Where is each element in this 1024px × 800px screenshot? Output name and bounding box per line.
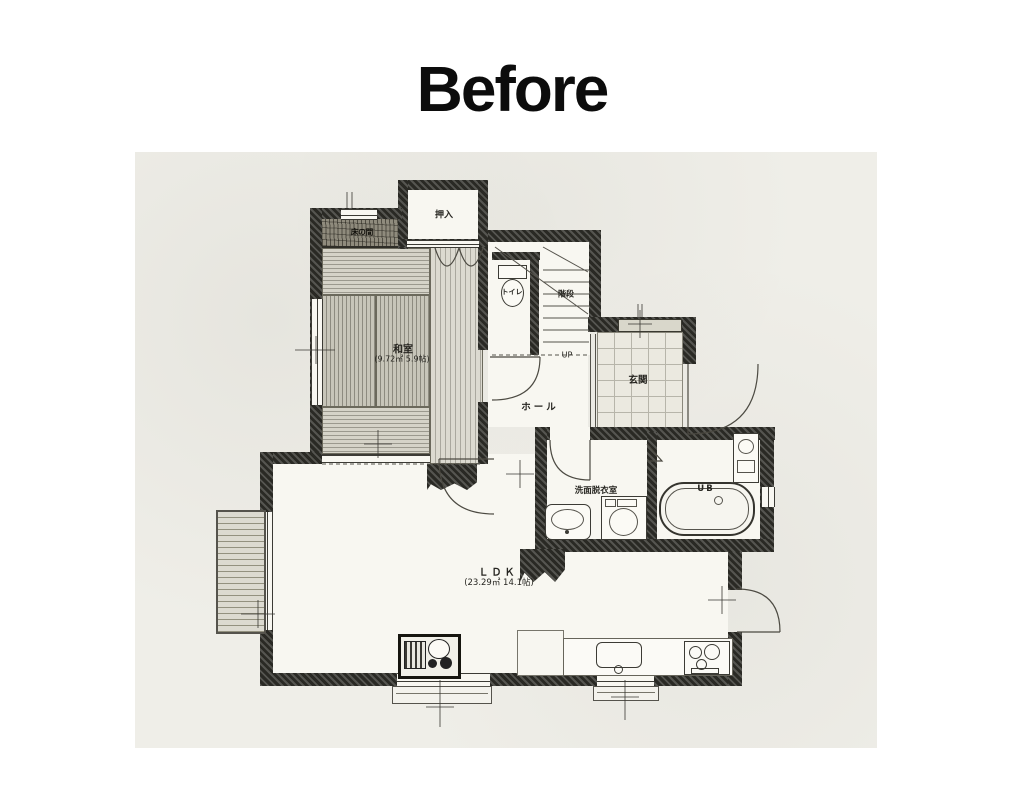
floor-plan: 押入 床の間 和室 (9.72㎡ 5.9帖) トイレ 階段 UP 玄関 ホール …	[135, 152, 877, 748]
room-label-toilet: トイレ	[502, 287, 523, 297]
room-area-ldk: (23.29㎡ 14.1帖)	[464, 576, 534, 588]
room-label-hall: ホール	[521, 399, 559, 413]
screenshot-root: { "page": { "title": "Before" }, "colors…	[0, 0, 1024, 800]
laundry-door-swing	[550, 440, 590, 480]
room-label-stairs: 階段	[558, 289, 574, 300]
door-swing-and-linework-layer	[135, 152, 877, 748]
toilet-door-swing	[490, 357, 540, 400]
room-label-oshiire: 押入	[435, 208, 453, 221]
bath-folding-door	[647, 444, 662, 461]
page-title: Before	[0, 52, 1024, 126]
room-label-laundry: 洗面脱衣室	[575, 484, 618, 496]
hall-ldk-door-swing	[439, 459, 494, 514]
room-label-genkan: 玄関	[628, 372, 647, 386]
ldk-back-door-swing	[737, 589, 780, 632]
stairs-up-label: UP	[562, 351, 573, 360]
fusuma-swing-marks	[435, 248, 483, 266]
room-area-washitsu: (9.72㎡ 5.9帖)	[374, 354, 429, 365]
room-label-bath: UB	[697, 484, 714, 494]
entrance-door-swing	[688, 364, 758, 434]
room-label-tokonoma: 床の間	[351, 227, 374, 238]
